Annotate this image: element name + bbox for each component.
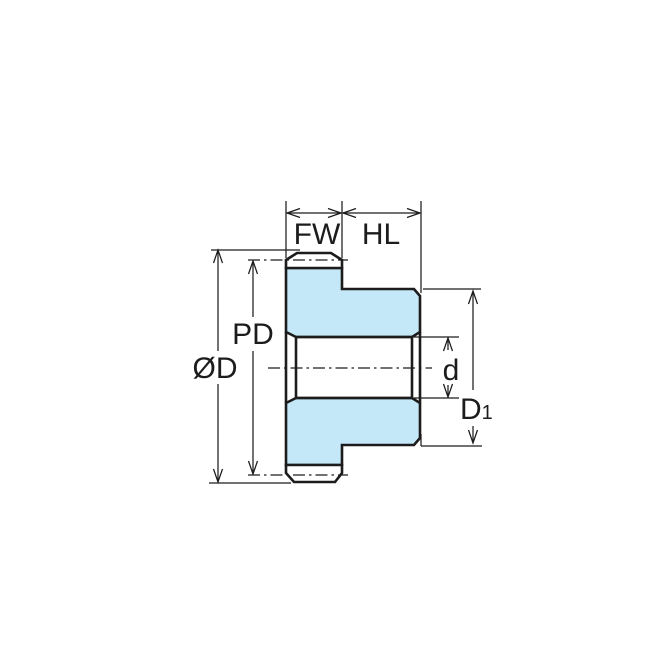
- label-face-width: FW: [294, 218, 341, 251]
- technical-drawing-canvas: FW HL PD ØD d D1: [0, 0, 670, 670]
- gear-body-lower-section: [286, 398, 420, 465]
- gear-cross-section-drawing: FW HL PD ØD d D1: [0, 0, 670, 670]
- label-hub-diameter: D1: [460, 393, 493, 426]
- label-bore-diameter: d: [443, 354, 460, 387]
- label-pitch-diameter: PD: [232, 318, 274, 351]
- label-hub-diameter-subscript: 1: [482, 402, 493, 424]
- label-hub-diameter-main: D: [460, 393, 482, 426]
- label-hub-length: HL: [362, 218, 400, 251]
- gear-tooth-bottom: [286, 465, 342, 482]
- label-outside-diameter: ØD: [193, 352, 238, 385]
- gear-body-upper-section: [286, 268, 420, 337]
